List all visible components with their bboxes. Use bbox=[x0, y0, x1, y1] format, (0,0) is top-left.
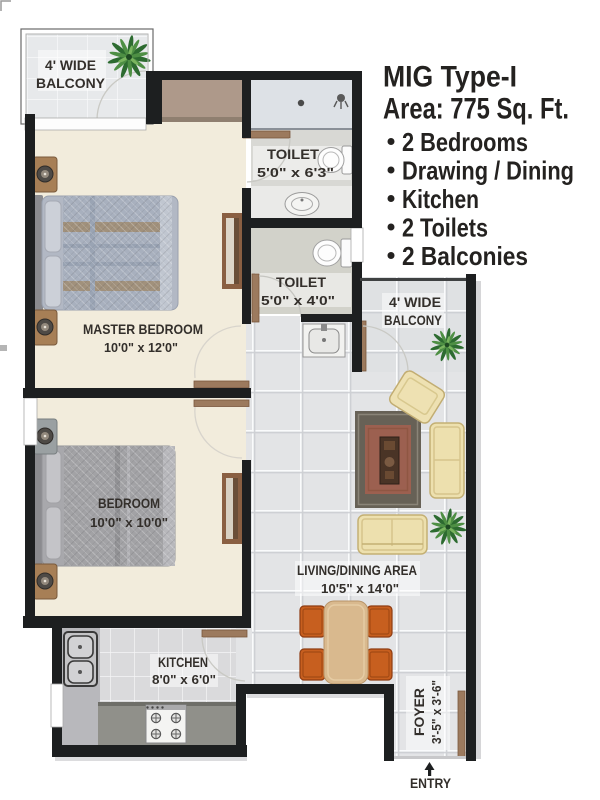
svg-text:4' WIDE: 4' WIDE bbox=[45, 57, 96, 73]
svg-text:10'0" x 12'0": 10'0" x 12'0" bbox=[104, 340, 178, 355]
svg-text:3'-5" x 3'-6": 3'-5" x 3'-6" bbox=[429, 680, 444, 744]
svg-text:4' WIDE: 4' WIDE bbox=[389, 294, 441, 310]
svg-text:8'0" x 6'0": 8'0" x 6'0" bbox=[152, 672, 216, 687]
svg-text:Drawing / Dining: Drawing / Dining bbox=[402, 156, 574, 186]
svg-text:BEDROOM: BEDROOM bbox=[98, 495, 160, 511]
svg-text:TOILET: TOILET bbox=[276, 274, 326, 290]
svg-text:5'0" x 6'3": 5'0" x 6'3" bbox=[257, 165, 334, 180]
svg-text:10'5" x 14'0": 10'5" x 14'0" bbox=[321, 581, 399, 596]
svg-text:2 Toilets: 2 Toilets bbox=[402, 213, 488, 243]
svg-text:2 Bedrooms: 2 Bedrooms bbox=[402, 127, 528, 157]
svg-text:Area: 775 Sq. Ft.: Area: 775 Sq. Ft. bbox=[383, 93, 569, 126]
svg-text:MASTER BEDROOM: MASTER BEDROOM bbox=[83, 321, 203, 337]
svg-text:BALCONY: BALCONY bbox=[36, 75, 106, 91]
svg-text:10'0" x 10'0": 10'0" x 10'0" bbox=[90, 515, 168, 530]
svg-text:2 Balconies: 2 Balconies bbox=[402, 241, 528, 271]
svg-text:LIVING/DINING AREA: LIVING/DINING AREA bbox=[297, 562, 417, 578]
svg-text:5'0" x 4'0": 5'0" x 4'0" bbox=[261, 293, 335, 308]
svg-text:FOYER: FOYER bbox=[411, 688, 427, 736]
svg-text:MIG Type-I: MIG Type-I bbox=[383, 61, 517, 94]
svg-text:ENTRY: ENTRY bbox=[410, 776, 451, 791]
svg-text:TOILET: TOILET bbox=[267, 146, 319, 162]
svg-text:BALCONY: BALCONY bbox=[384, 312, 443, 328]
svg-text:KITCHEN: KITCHEN bbox=[158, 654, 208, 670]
svg-text:Kitchen: Kitchen bbox=[402, 184, 479, 214]
